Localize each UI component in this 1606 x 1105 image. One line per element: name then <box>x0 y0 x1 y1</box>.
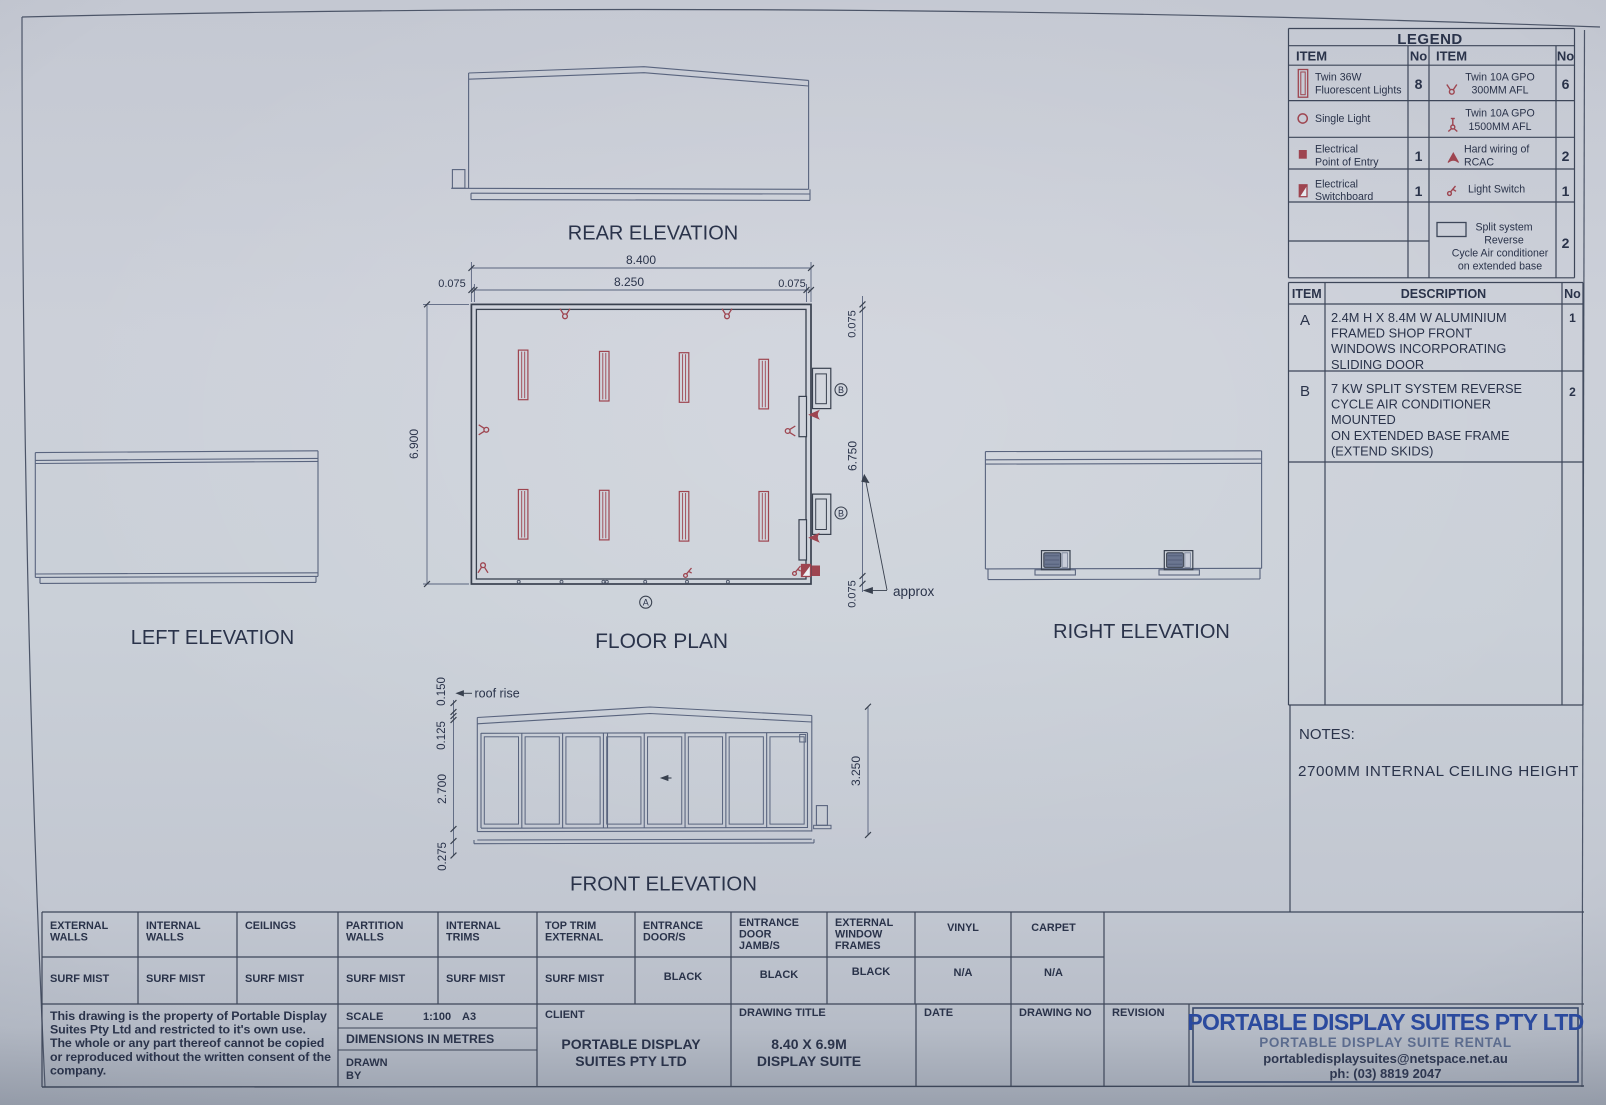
svg-text:EXTERNAL: EXTERNAL <box>545 932 604 944</box>
svg-text:LEGEND: LEGEND <box>1397 31 1463 48</box>
svg-text:RIGHT ELEVATION: RIGHT ELEVATION <box>1053 621 1230 643</box>
svg-text:0.150: 0.150 <box>436 677 448 706</box>
svg-text:MOUNTED: MOUNTED <box>1331 412 1396 427</box>
svg-text:Fluorescent Lights: Fluorescent Lights <box>1315 85 1402 97</box>
svg-text:FRAMED SHOP FRONT: FRAMED SHOP FRONT <box>1331 326 1472 341</box>
svg-text:REAR ELEVATION: REAR ELEVATION <box>568 223 738 245</box>
svg-text:2: 2 <box>1562 235 1570 251</box>
svg-text:SURF MIST: SURF MIST <box>50 973 110 985</box>
svg-text:TRIMS: TRIMS <box>446 932 480 944</box>
svg-text:Point of Entry: Point of Entry <box>1315 157 1379 169</box>
svg-text:Single Light: Single Light <box>1315 113 1370 125</box>
svg-text:0.075: 0.075 <box>847 310 859 338</box>
svg-text:0.075: 0.075 <box>847 580 859 608</box>
svg-text:ON EXTENDED BASE FRAME: ON EXTENDED BASE FRAME <box>1331 428 1509 443</box>
svg-text:RCAC: RCAC <box>1464 157 1494 169</box>
svg-text:A: A <box>643 598 649 608</box>
svg-text:EXTERNAL: EXTERNAL <box>50 920 109 932</box>
svg-text:B: B <box>838 509 844 519</box>
svg-text:8.250: 8.250 <box>614 275 644 289</box>
svg-text:LEFT ELEVATION: LEFT ELEVATION <box>131 627 294 649</box>
svg-text:portabledisplaysuites@netspace: portabledisplaysuites@netspace.net.au <box>1263 1051 1508 1066</box>
svg-text:The whole or any part thereof: The whole or any part thereof cannot be … <box>50 1036 324 1050</box>
svg-text:INTERNAL: INTERNAL <box>146 920 201 932</box>
svg-text:1: 1 <box>1562 183 1570 199</box>
svg-text:Twin 10A GPO: Twin 10A GPO <box>1465 72 1534 84</box>
svg-text:Reverse: Reverse <box>1484 235 1524 247</box>
svg-text:SURF MIST: SURF MIST <box>446 973 506 985</box>
svg-text:REVISION: REVISION <box>1112 1007 1165 1019</box>
svg-text:1: 1 <box>1569 311 1576 325</box>
svg-text:A: A <box>1300 312 1310 329</box>
svg-text:Switchboard: Switchboard <box>1315 191 1373 203</box>
svg-text:0.125: 0.125 <box>436 721 448 750</box>
svg-text:Suites Pty Ltd and restricted: Suites Pty Ltd and restricted to it's ow… <box>50 1023 306 1037</box>
svg-text:SCALE: SCALE <box>346 1011 383 1023</box>
svg-text:1500MM AFL: 1500MM AFL <box>1468 121 1531 133</box>
svg-text:ITEM: ITEM <box>1296 49 1327 64</box>
svg-text:CYCLE AIR CONDITIONER: CYCLE AIR CONDITIONER <box>1331 397 1491 412</box>
svg-text:CEILINGS: CEILINGS <box>245 920 296 932</box>
svg-text:DESCRIPTION: DESCRIPTION <box>1401 287 1486 301</box>
svg-text:PORTABLE DISPLAY: PORTABLE DISPLAY <box>561 1036 701 1052</box>
svg-text:B: B <box>1300 383 1310 400</box>
svg-text:2: 2 <box>1569 385 1576 399</box>
svg-text:SLIDING DOOR: SLIDING DOOR <box>1331 357 1424 372</box>
svg-text:ENTRANCE: ENTRANCE <box>643 920 703 932</box>
svg-text:DATE: DATE <box>924 1007 953 1019</box>
svg-text:6.900: 6.900 <box>407 429 421 459</box>
svg-text:Electrical: Electrical <box>1315 179 1358 191</box>
svg-text:company.: company. <box>50 1063 106 1077</box>
svg-text:DRAWN: DRAWN <box>346 1057 388 1069</box>
svg-text:WALLS: WALLS <box>346 932 384 944</box>
svg-text:0.275: 0.275 <box>437 842 449 871</box>
svg-text:FRONT ELEVATION: FRONT ELEVATION <box>570 874 757 896</box>
svg-text:0.075: 0.075 <box>438 278 466 290</box>
svg-text:or reproduced without the writ: or reproduced without the written consen… <box>50 1050 331 1064</box>
svg-text:PARTITION: PARTITION <box>346 920 404 932</box>
svg-text:0.075: 0.075 <box>778 278 806 290</box>
svg-text:DOOR/S: DOOR/S <box>643 932 686 944</box>
svg-text:1:100: 1:100 <box>423 1011 451 1023</box>
svg-text:ITEM: ITEM <box>1292 287 1322 301</box>
svg-text:B: B <box>838 385 844 395</box>
svg-text:FRAMES: FRAMES <box>835 940 881 952</box>
svg-text:ph: (03) 8819 2047: ph: (03) 8819 2047 <box>1329 1066 1441 1081</box>
svg-text:VINYL: VINYL <box>947 922 979 934</box>
svg-text:DIMENSIONS IN METRES: DIMENSIONS IN METRES <box>346 1032 494 1046</box>
svg-text:7 KW SPLIT SYSTEM REVERSE: 7 KW SPLIT SYSTEM REVERSE <box>1331 381 1522 396</box>
svg-text:Electrical: Electrical <box>1315 144 1358 156</box>
svg-text:N/A: N/A <box>954 967 973 979</box>
svg-text:3.250: 3.250 <box>849 756 863 786</box>
svg-text:2.4M H X 8.4M W ALUMINIUM: 2.4M H X 8.4M W ALUMINIUM <box>1331 310 1507 325</box>
svg-text:WINDOW: WINDOW <box>835 929 883 941</box>
svg-text:BLACK: BLACK <box>760 969 799 981</box>
svg-text:8.400: 8.400 <box>626 253 656 267</box>
svg-text:6.750: 6.750 <box>846 441 860 471</box>
svg-text:PORTABLE DISPLAY SUITES PTY LT: PORTABLE DISPLAY SUITES PTY LTD <box>1187 1009 1583 1035</box>
svg-text:WALLS: WALLS <box>50 932 88 944</box>
svg-text:No: No <box>1564 287 1581 301</box>
svg-text:ITEM: ITEM <box>1436 49 1467 64</box>
svg-text:Light Switch: Light Switch <box>1468 184 1525 196</box>
svg-text:2: 2 <box>1562 148 1570 164</box>
svg-text:SURF MIST: SURF MIST <box>346 973 406 985</box>
svg-text:TOP TRIM: TOP TRIM <box>545 920 596 932</box>
svg-text:DRAWING TITLE: DRAWING TITLE <box>739 1007 826 1019</box>
svg-text:This drawing is the property o: This drawing is the property of Portable… <box>50 1009 327 1023</box>
svg-text:CLIENT: CLIENT <box>545 1009 585 1021</box>
svg-text:Cycle Air conditioner: Cycle Air conditioner <box>1452 248 1549 260</box>
svg-text:DOOR: DOOR <box>739 929 772 941</box>
svg-text:DRAWING NO: DRAWING NO <box>1019 1007 1092 1019</box>
svg-text:FLOOR PLAN: FLOOR PLAN <box>595 630 728 653</box>
svg-text:6: 6 <box>1562 76 1570 92</box>
svg-text:DISPLAY SUITE: DISPLAY SUITE <box>757 1053 861 1069</box>
svg-text:SURF MIST: SURF MIST <box>146 973 206 985</box>
svg-text:No: No <box>1410 49 1427 64</box>
svg-text:No: No <box>1557 49 1574 64</box>
svg-text:(EXTEND SKIDS): (EXTEND SKIDS) <box>1331 443 1433 458</box>
svg-text:Hard wiring of: Hard wiring of <box>1464 144 1529 156</box>
svg-text:INTERNAL: INTERNAL <box>446 920 501 932</box>
svg-text:300MM AFL: 300MM AFL <box>1471 85 1528 97</box>
svg-text:BLACK: BLACK <box>664 971 703 983</box>
svg-text:N/A: N/A <box>1044 967 1063 979</box>
svg-text:WINDOWS INCORPORATING: WINDOWS INCORPORATING <box>1331 341 1506 356</box>
svg-text:2.700: 2.700 <box>435 774 449 804</box>
svg-text:Twin 36W: Twin 36W <box>1315 72 1362 84</box>
svg-text:EXTERNAL: EXTERNAL <box>835 917 894 929</box>
svg-text:Twin 10A GPO: Twin 10A GPO <box>1465 108 1534 120</box>
svg-text:WALLS: WALLS <box>146 932 184 944</box>
svg-text:roof rise: roof rise <box>475 687 520 701</box>
svg-text:ENTRANCE: ENTRANCE <box>739 917 799 929</box>
svg-text:8.40 X 6.9M: 8.40 X 6.9M <box>771 1036 847 1052</box>
svg-text:1: 1 <box>1415 148 1423 164</box>
svg-text:1: 1 <box>1415 183 1423 199</box>
svg-text:CARPET: CARPET <box>1031 922 1076 934</box>
svg-text:2700MM INTERNAL CEILING HEIGHT: 2700MM INTERNAL CEILING HEIGHT <box>1298 763 1579 780</box>
svg-text:BY: BY <box>346 1070 362 1082</box>
svg-text:SURF MIST: SURF MIST <box>545 973 605 985</box>
svg-text:A3: A3 <box>462 1011 476 1023</box>
svg-text:BLACK: BLACK <box>852 966 891 978</box>
svg-text:NOTES:: NOTES: <box>1299 726 1355 743</box>
svg-text:SURF MIST: SURF MIST <box>245 973 305 985</box>
svg-text:SUITES PTY LTD: SUITES PTY LTD <box>575 1053 687 1069</box>
svg-text:on extended base: on extended base <box>1458 261 1542 273</box>
svg-text:JAMB/S: JAMB/S <box>739 940 780 952</box>
svg-text:8: 8 <box>1415 76 1423 92</box>
svg-text:approx: approx <box>893 584 935 599</box>
svg-text:Split system: Split system <box>1475 222 1532 234</box>
svg-text:PORTABLE DISPLAY SUITE RENTAL: PORTABLE DISPLAY SUITE RENTAL <box>1259 1035 1511 1050</box>
